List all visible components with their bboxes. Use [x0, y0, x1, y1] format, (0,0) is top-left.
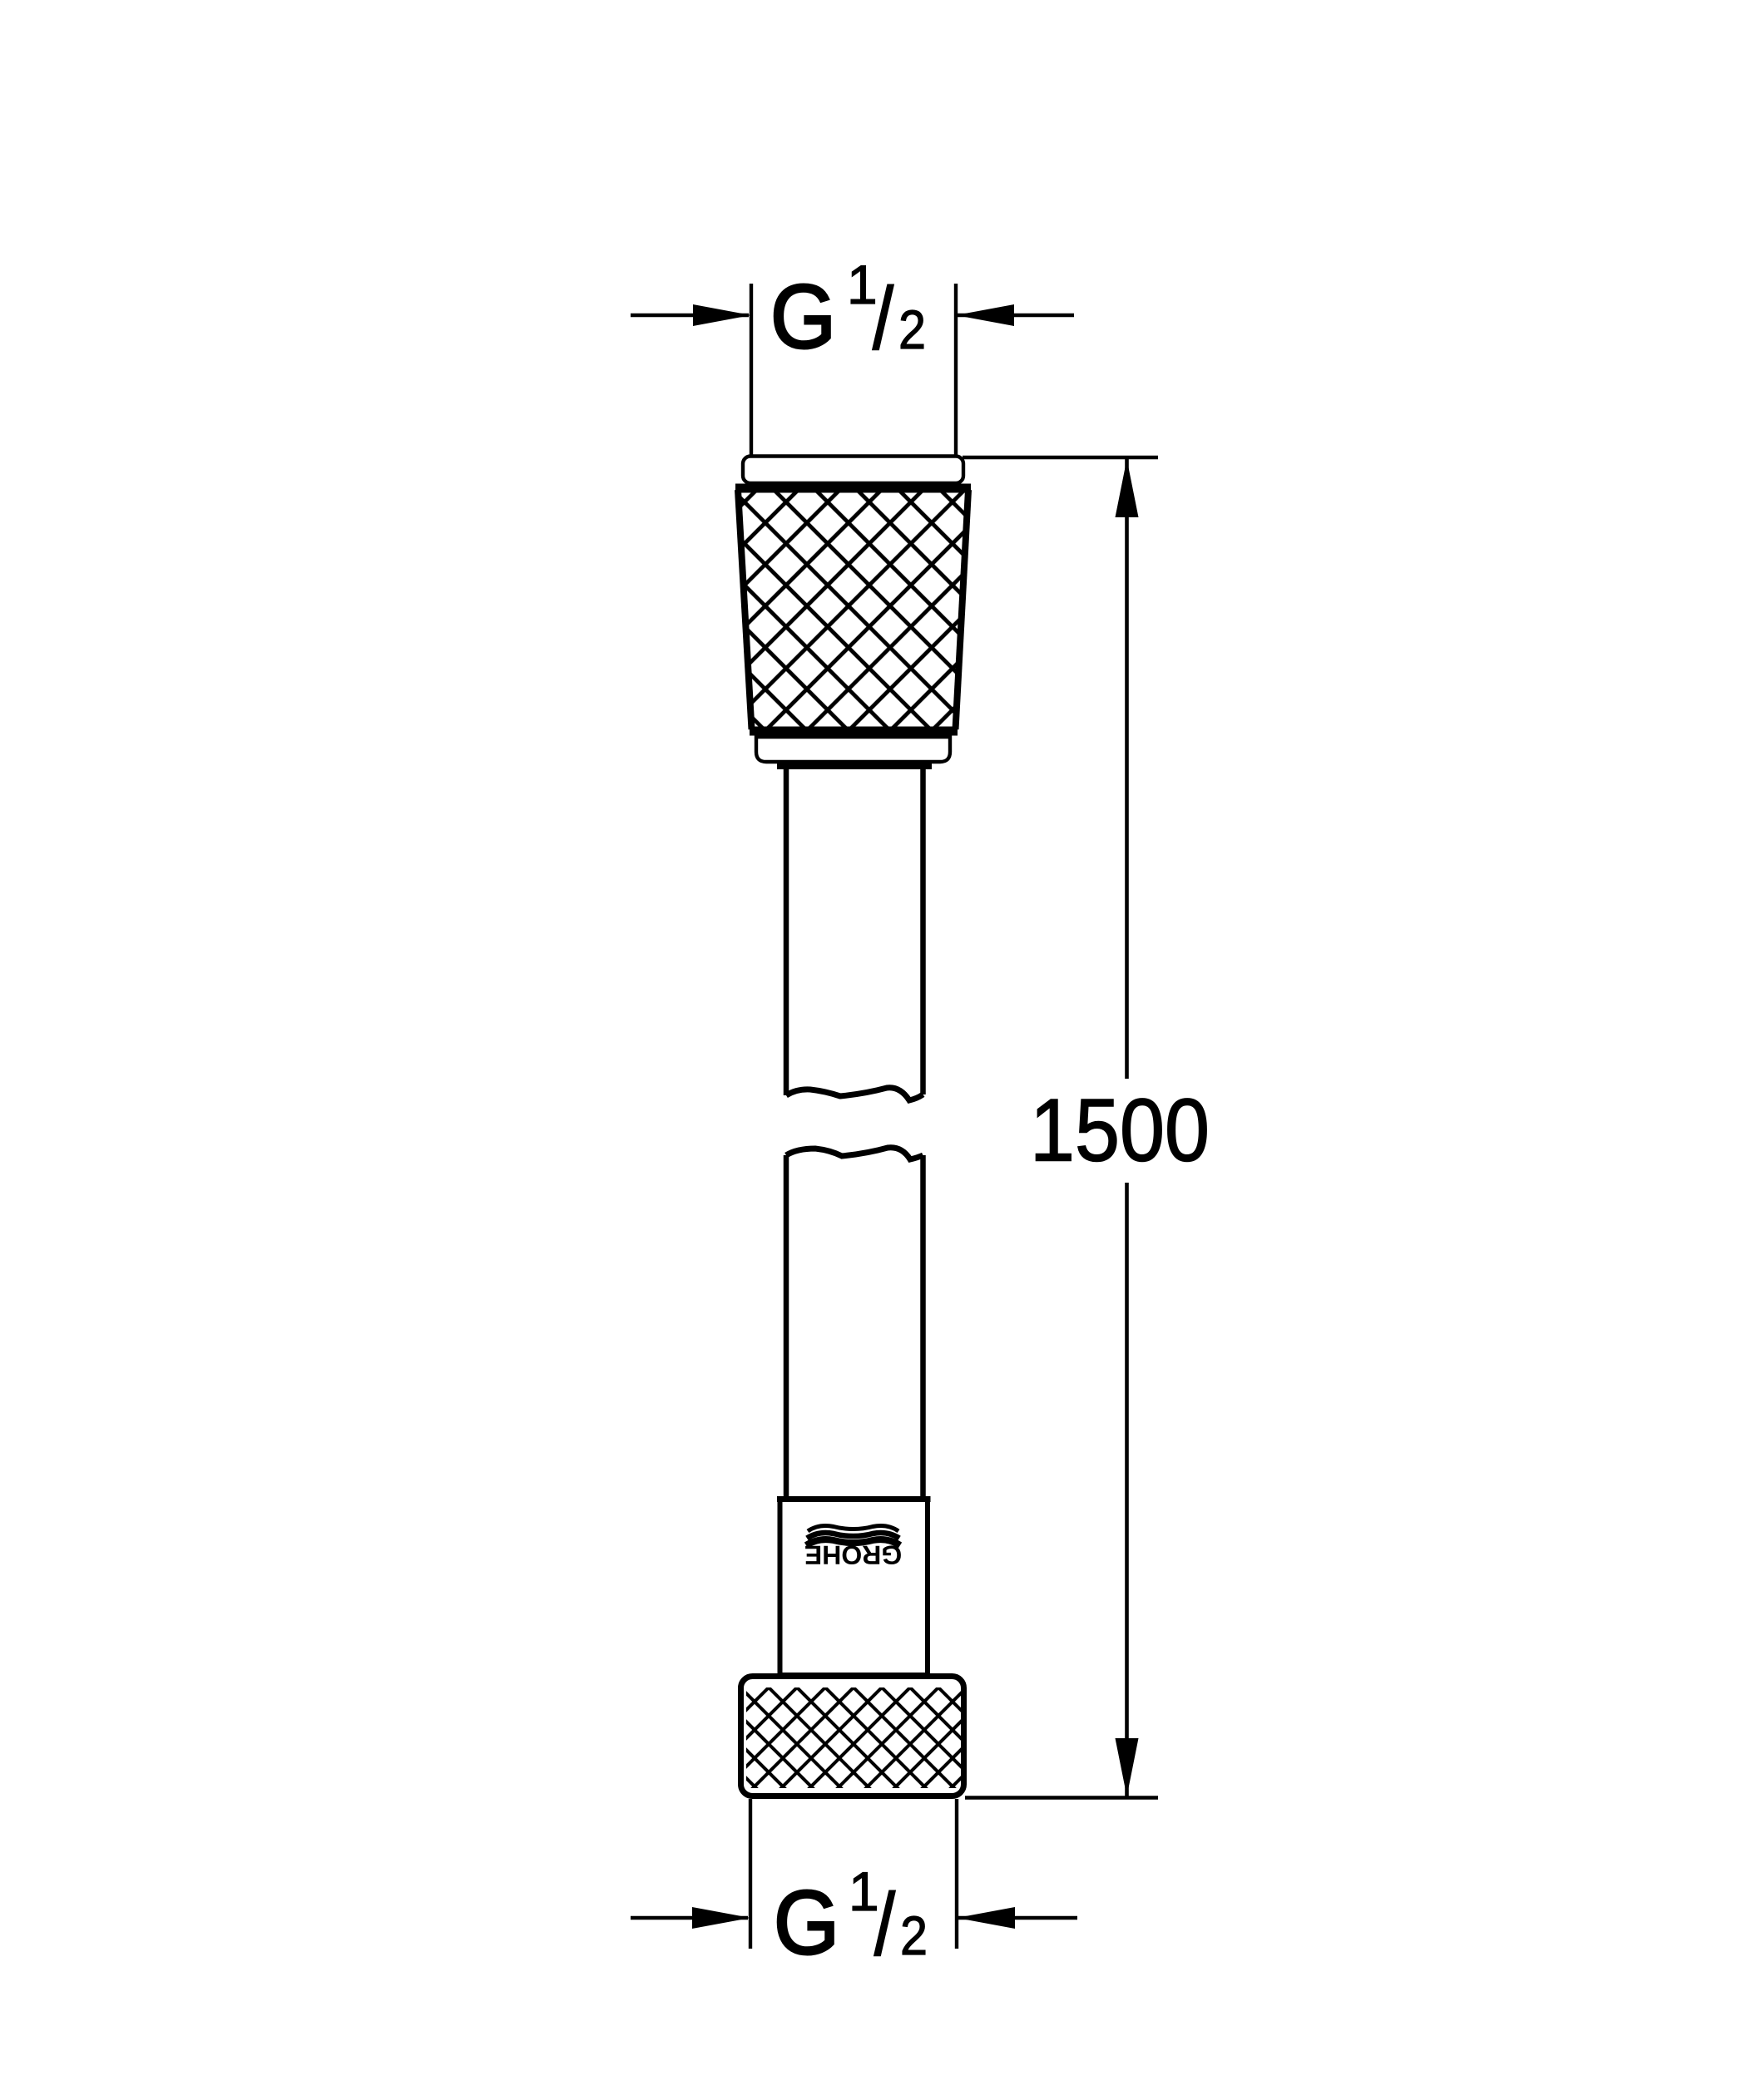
svg-text:G: G [770, 266, 836, 368]
svg-text:2: 2 [898, 299, 926, 360]
svg-text:G: G [774, 1872, 839, 1974]
svg-text:/: / [874, 1875, 895, 1974]
svg-text:1500: 1500 [1030, 1080, 1210, 1180]
svg-text:/: / [873, 269, 893, 368]
svg-text:2: 2 [900, 1905, 928, 1966]
